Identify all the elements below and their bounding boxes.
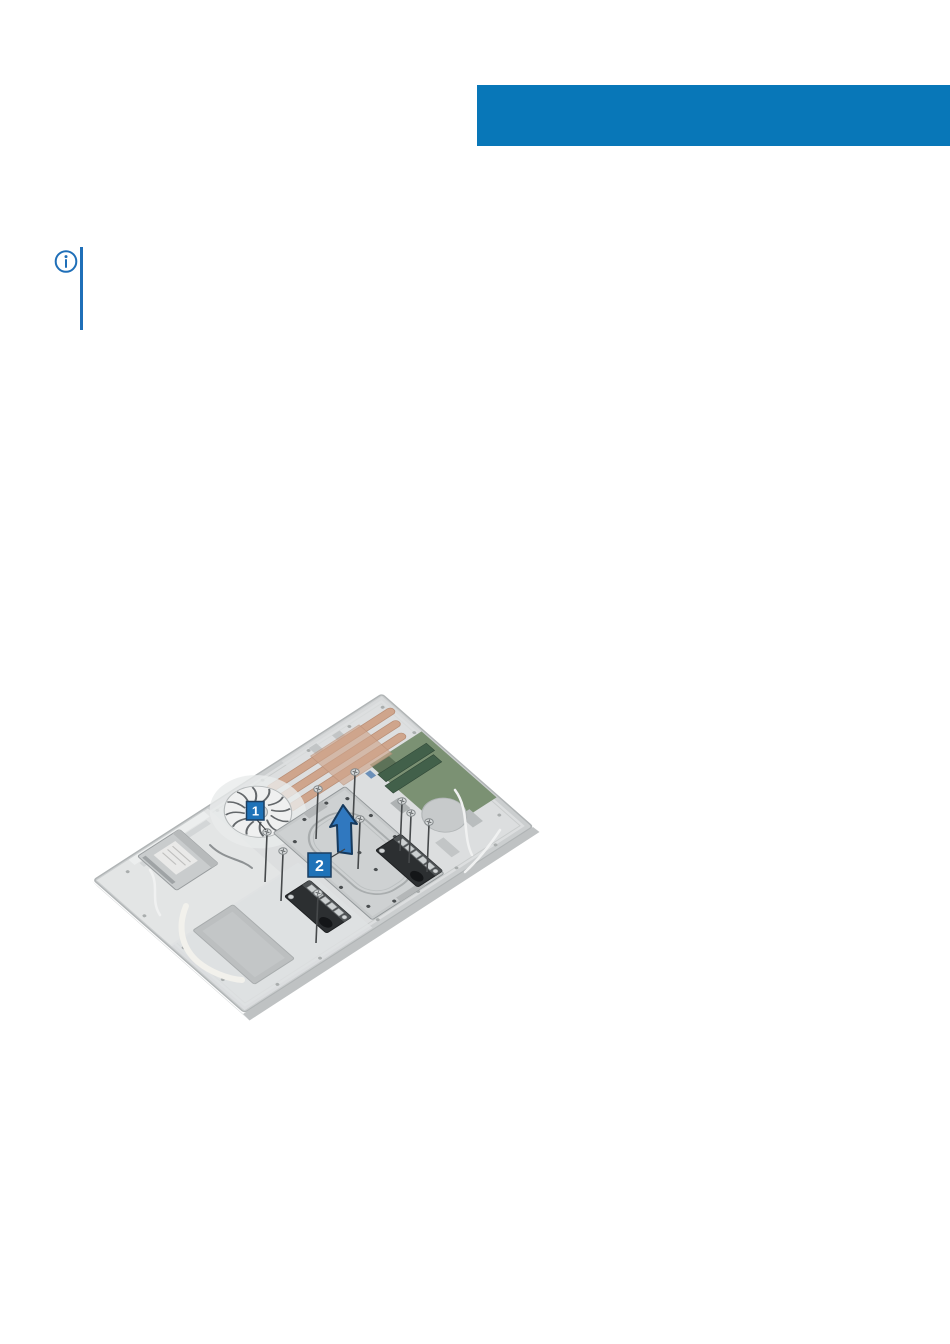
figure-system-board-shield-removal: 1 2 [85,685,565,1065]
note-rule [80,247,83,330]
manual-page: { "colors": { "background": "#ffffff", "… [0,0,950,1344]
callout-1-number: 1 [252,804,259,819]
info-icon [53,248,81,276]
section-header-band [477,85,950,146]
info-icon-strokes [56,251,77,272]
callout-2-number: 2 [315,858,324,875]
info-icon-dot [65,255,68,258]
display-assembly-base [86,687,533,1012]
note-block [53,247,93,333]
